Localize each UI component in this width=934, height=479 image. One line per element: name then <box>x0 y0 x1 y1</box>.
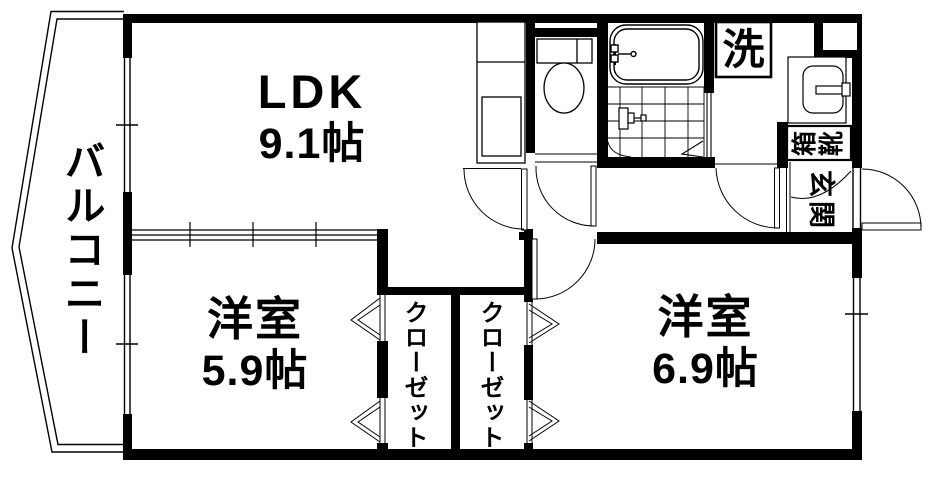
closet-left-label: クローゼット <box>395 297 425 453</box>
kitchen-sink <box>477 22 525 163</box>
washroom-door <box>715 164 780 228</box>
shoebox-label: 箱 靴 <box>787 126 851 160</box>
ldk-size: 9.1帖 <box>222 123 402 166</box>
room69-name: 洋室 <box>608 294 803 340</box>
bathtub-icon <box>610 25 703 84</box>
room69-door <box>532 239 595 299</box>
western-room-large-label: 洋室 6.9帖 <box>608 294 803 391</box>
meter-box <box>823 23 857 50</box>
sliding-door <box>128 222 377 247</box>
floorplan-canvas: バルコニー LDK 9.1帖 洋室 5.9帖 洋室 6.9帖 クローゼット クロ… <box>0 0 934 479</box>
entrance-char-2: 関 <box>807 201 834 228</box>
toilet-icon <box>537 39 592 113</box>
shoebox-char-left: 箱 <box>793 130 818 155</box>
ldk-name: LDK <box>222 68 402 115</box>
entrance-label: 玄 関 <box>799 165 841 233</box>
shoebox-char-right: 靴 <box>820 130 845 155</box>
room69-size: 6.9帖 <box>608 348 803 391</box>
floorplan-drawing <box>0 0 934 479</box>
western-room-small-label: 洋室 5.9帖 <box>160 296 350 393</box>
laundry-label: 洗 <box>716 22 771 77</box>
ldk-label: LDK 9.1帖 <box>222 68 402 166</box>
ldk-door <box>463 169 527 231</box>
entrance-char-1: 玄 <box>807 170 834 197</box>
room59-size: 5.9帖 <box>160 350 350 393</box>
entrance-door <box>862 169 921 230</box>
washbasin-icon <box>788 57 850 123</box>
room59-name: 洋室 <box>160 296 350 342</box>
closet-right-label: クローゼット <box>471 297 501 453</box>
balcony-label: バルコニー <box>47 102 101 397</box>
toilet-door <box>535 154 597 226</box>
bath-door <box>682 93 711 157</box>
